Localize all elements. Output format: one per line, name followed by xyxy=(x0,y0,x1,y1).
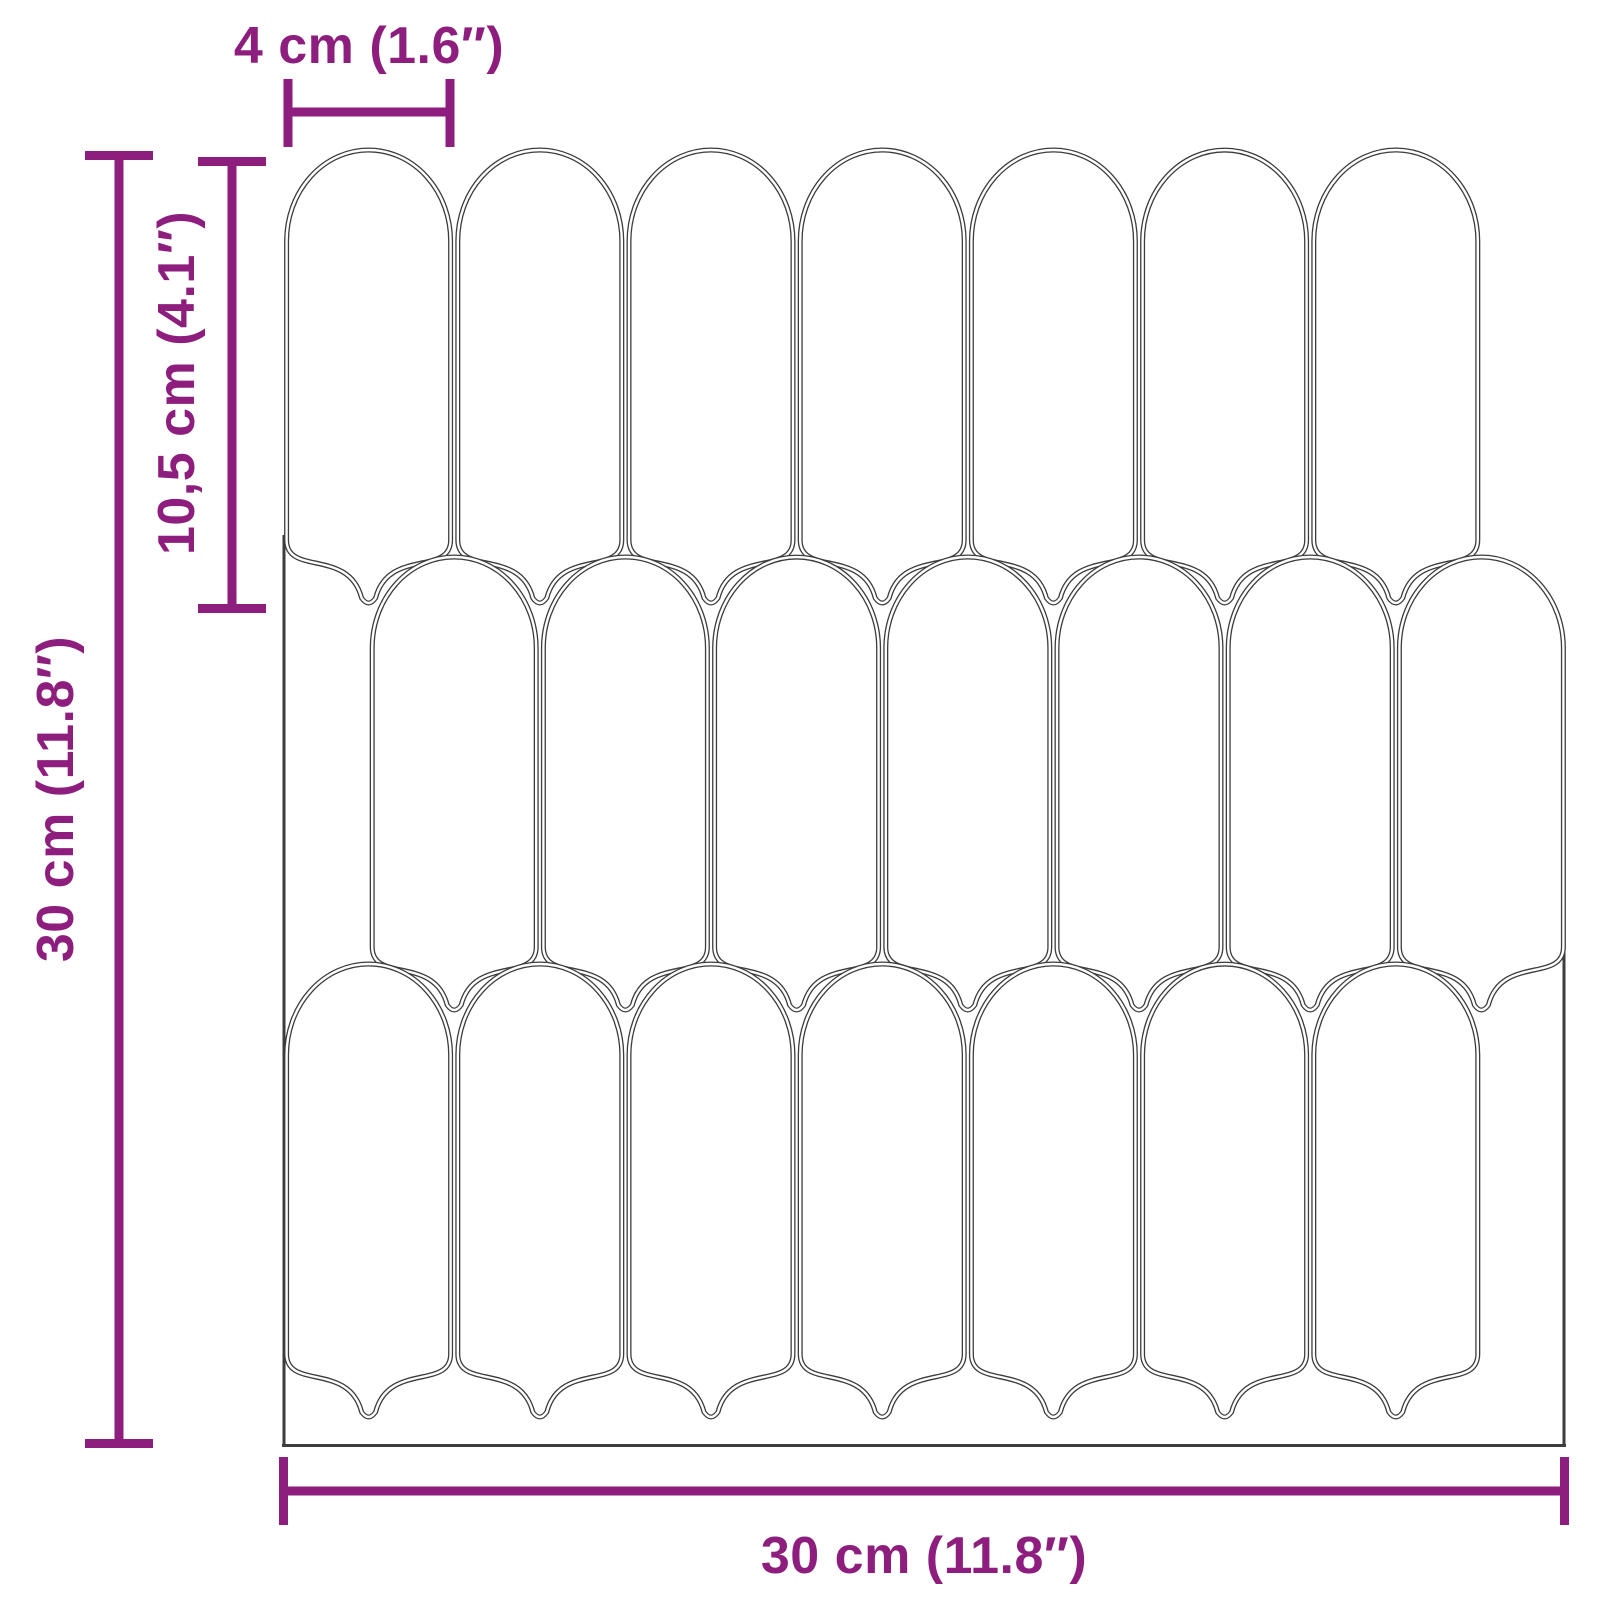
tile-row2-col7 xyxy=(1399,557,1563,1010)
tile-row1-col1 xyxy=(287,150,451,603)
page-root: 4 cm (1.6″) 10,5 cm (4.1″) 30 cm (11.8″)… xyxy=(0,0,1600,1600)
sheet-width-dimension-label: 30 cm (11.8″) xyxy=(761,1530,1087,1582)
tile-row1-col6 xyxy=(1143,150,1307,603)
dim-sheet-width xyxy=(279,1457,1569,1525)
tile-row2-col1 xyxy=(372,557,536,1010)
tile-row2-col2 xyxy=(543,557,707,1010)
tile-row1-col7 xyxy=(1314,150,1478,603)
dim-sheet-height xyxy=(85,151,153,1448)
sheet-height-dimension-label: 30 cm (11.8″) xyxy=(30,636,82,962)
tile-width-dimension-label: 4 cm (1.6″) xyxy=(234,20,504,72)
tile-row1-col5 xyxy=(971,150,1135,603)
tile-row3-col4 xyxy=(800,964,964,1417)
tile-row2-col6 xyxy=(1228,557,1392,1010)
tile-row3-col1 xyxy=(287,964,451,1417)
tile-row1-col2 xyxy=(458,150,622,603)
tile-grid xyxy=(287,150,1564,1417)
tile-row1-col4 xyxy=(800,150,964,603)
tile-row3-col3 xyxy=(629,964,793,1417)
tile-row3-col7 xyxy=(1314,964,1478,1417)
tile-row3-col6 xyxy=(1143,964,1307,1417)
tile-sheet-diagram xyxy=(0,0,1600,1600)
dim-tile-width xyxy=(284,79,454,147)
tile-row2-col3 xyxy=(715,557,879,1010)
dim-tile-height xyxy=(198,157,266,613)
tile-row2-col5 xyxy=(1057,557,1221,1010)
tile-row3-col2 xyxy=(458,964,622,1417)
tile-height-dimension-label: 10,5 cm (4.1″) xyxy=(151,211,203,555)
tile-row3-col5 xyxy=(971,964,1135,1417)
tile-row1-col3 xyxy=(629,150,793,603)
tile-row2-col4 xyxy=(886,557,1050,1010)
